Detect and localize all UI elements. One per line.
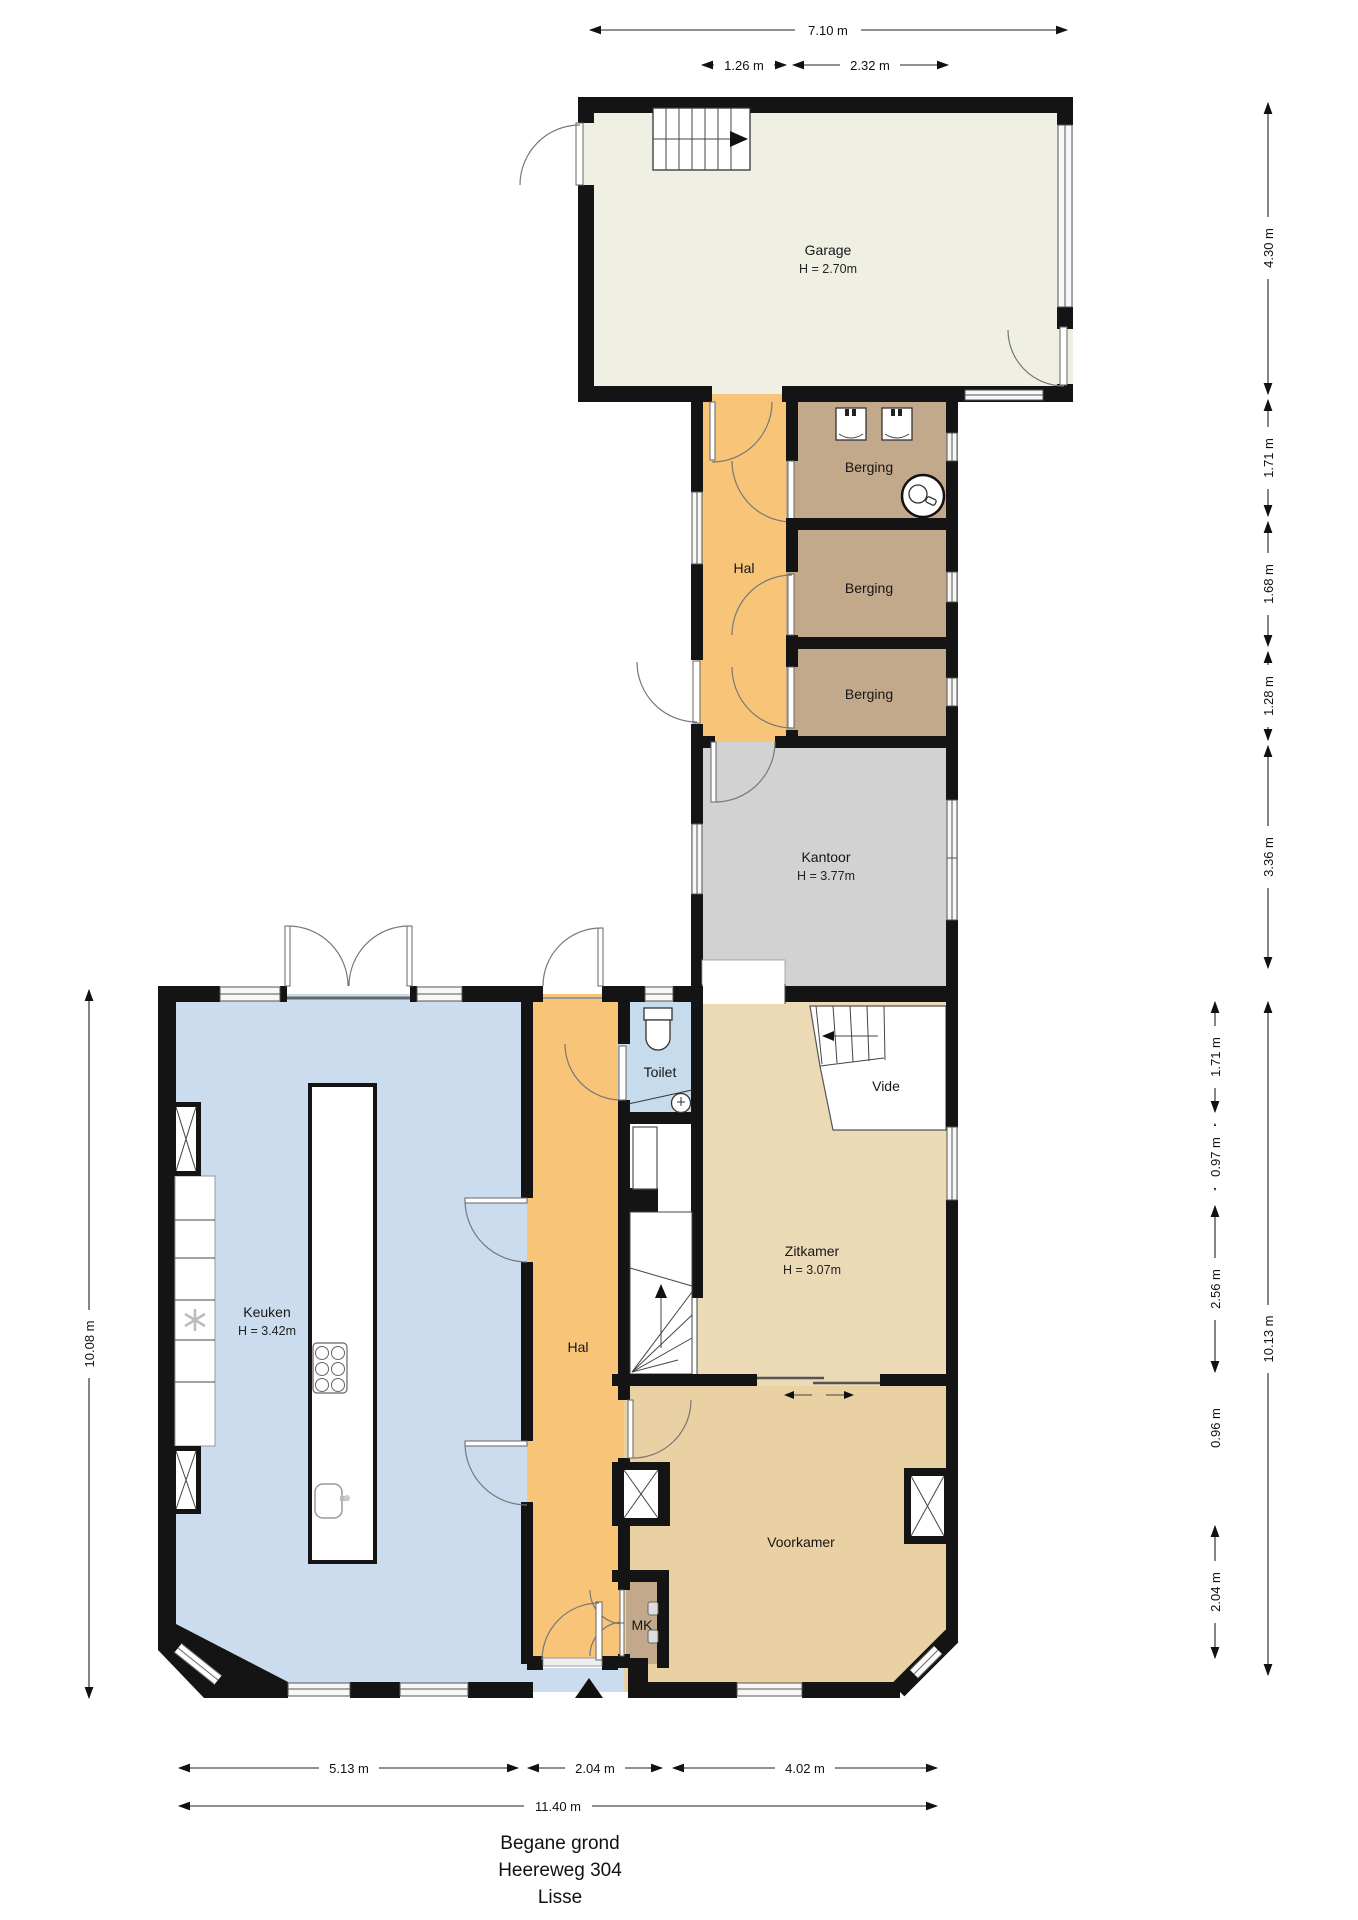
washing-machine-icon bbox=[836, 408, 866, 440]
toilet-icon bbox=[644, 1008, 672, 1050]
dim-bottom-voorkamer: 4.02 m bbox=[673, 1759, 937, 1777]
title-street: Heereweg 304 bbox=[498, 1860, 622, 1881]
stairs-icon bbox=[630, 1212, 697, 1374]
svg-text:11.40 m: 11.40 m bbox=[535, 1799, 581, 1814]
svg-text:2.32 m: 2.32 m bbox=[850, 58, 890, 73]
berging3-label: Berging bbox=[845, 686, 893, 702]
dim-top-total: 7.10 m bbox=[590, 21, 1067, 39]
svg-text:3.36 m: 3.36 m bbox=[1261, 837, 1276, 877]
garden-double-door bbox=[285, 926, 412, 998]
svg-text:7.10 m: 7.10 m bbox=[808, 23, 848, 38]
dim-right-seg3: 2.56 m bbox=[1206, 1206, 1224, 1372]
dim-right-berging3: 1.28 m bbox=[1259, 652, 1277, 740]
hal-mid-label: Hal bbox=[733, 560, 754, 576]
dim-right-kantoor: 3.36 m bbox=[1259, 746, 1277, 968]
garage-label: Garage bbox=[805, 242, 852, 258]
shaft-x-icon bbox=[904, 1468, 958, 1544]
svg-text:4.02 m: 4.02 m bbox=[785, 1761, 825, 1776]
keuken-height-label: H = 3.42m bbox=[238, 1324, 296, 1338]
dim-right-seg2: 0.97 m bbox=[1206, 1124, 1224, 1190]
dim-right-total: 10.13 m bbox=[1259, 1002, 1277, 1675]
svg-text:1.26 m: 1.26 m bbox=[724, 58, 764, 73]
shaft-x-icon bbox=[171, 1446, 201, 1514]
svg-text:5.13 m: 5.13 m bbox=[329, 1761, 369, 1776]
garage-side-door bbox=[520, 123, 583, 185]
svg-text:1.71 m: 1.71 m bbox=[1208, 1037, 1223, 1077]
keuken-bottom-window-right bbox=[400, 1683, 468, 1696]
title-floor: Begane grond bbox=[500, 1833, 619, 1854]
berging3-window bbox=[947, 678, 957, 706]
berging1-window bbox=[947, 433, 957, 461]
hal-left-window bbox=[692, 492, 702, 564]
dim-right-seg5: 2.04 m bbox=[1206, 1526, 1224, 1658]
keuken-top-window-left bbox=[220, 987, 280, 1001]
svg-text:4.30 m: 4.30 m bbox=[1261, 228, 1276, 268]
kitchen-counter bbox=[175, 1176, 215, 1446]
toilet-label: Toilet bbox=[644, 1064, 677, 1080]
svg-text:2.56 m: 2.56 m bbox=[1208, 1269, 1223, 1309]
keuken-top-window-right bbox=[417, 987, 462, 1001]
dim-top-berging: 2.32 m bbox=[793, 56, 948, 74]
zitkamer-window bbox=[947, 1127, 957, 1200]
side-entrance-door bbox=[637, 661, 700, 723]
kantoor-height-label: H = 3.77m bbox=[797, 869, 855, 883]
kantoor-passage-opening bbox=[702, 960, 785, 1004]
dim-right-seg4: 0.96 m bbox=[1206, 1397, 1224, 1459]
toilet-top-window bbox=[645, 987, 673, 1001]
zitkamer-label: Zitkamer bbox=[785, 1243, 840, 1259]
voorkamer-bottom-window bbox=[737, 1683, 802, 1696]
title-city: Lisse bbox=[538, 1887, 582, 1908]
dim-bottom-hal: 2.04 m bbox=[528, 1759, 662, 1777]
berging1-label: Berging bbox=[845, 459, 893, 475]
garage-right-window bbox=[1058, 125, 1072, 307]
toilet-sink-icon bbox=[672, 1094, 691, 1113]
dim-bottom-keuken: 5.13 m bbox=[179, 1759, 518, 1777]
svg-text:10.13 m: 10.13 m bbox=[1261, 1316, 1276, 1363]
shaft-x-icon bbox=[171, 1102, 201, 1176]
zitkamer-height-label: H = 3.07m bbox=[783, 1263, 841, 1277]
kantoor-left-window bbox=[692, 824, 702, 894]
floorplan-page: Garage H = 2.70m bbox=[0, 0, 1358, 1920]
garage-stairs-icon bbox=[653, 108, 750, 170]
svg-text:1.71 m: 1.71 m bbox=[1261, 438, 1276, 478]
boiler-icon bbox=[902, 475, 944, 517]
stove-icon bbox=[313, 1343, 347, 1393]
dim-right-garage: 4.30 m bbox=[1259, 103, 1277, 394]
svg-text:0.96 m: 0.96 m bbox=[1208, 1408, 1223, 1448]
washing-machine-icon bbox=[882, 408, 912, 440]
berging2-window bbox=[947, 572, 957, 602]
kantoor-label: Kantoor bbox=[801, 849, 850, 865]
dim-bottom-total: 11.40 m bbox=[179, 1797, 937, 1815]
dim-right-berging1: 1.71 m bbox=[1259, 400, 1277, 516]
keuken-bottom-window-left bbox=[288, 1683, 350, 1696]
back-entrance-door bbox=[543, 928, 603, 998]
keuken-label: Keuken bbox=[243, 1304, 290, 1320]
svg-text:2.04 m: 2.04 m bbox=[575, 1761, 615, 1776]
svg-text:2.04 m: 2.04 m bbox=[1208, 1572, 1223, 1612]
dim-right-seg1: 1.71 m bbox=[1206, 1002, 1224, 1112]
svg-text:1.28 m: 1.28 m bbox=[1261, 676, 1276, 716]
kitchen-island bbox=[310, 1085, 375, 1562]
title-block: Begane grond Heereweg 304 Lisse bbox=[498, 1833, 622, 1908]
berging2-label: Berging bbox=[845, 580, 893, 596]
dim-right-berging2: 1.68 m bbox=[1259, 522, 1277, 646]
vide-label: Vide bbox=[872, 1078, 900, 1094]
svg-text:0.97 m: 0.97 m bbox=[1208, 1137, 1223, 1177]
cupboard bbox=[633, 1127, 657, 1189]
voorkamer-label: Voorkamer bbox=[767, 1534, 835, 1550]
room-fills bbox=[166, 97, 1073, 1692]
kantoor-right-window bbox=[947, 800, 957, 920]
kantoor-floor bbox=[691, 742, 958, 994]
svg-text:1.68 m: 1.68 m bbox=[1261, 564, 1276, 604]
dim-left-total: 10.08 m bbox=[80, 990, 98, 1698]
svg-text:10.08 m: 10.08 m bbox=[82, 1321, 97, 1368]
garage-bottom-window bbox=[965, 390, 1043, 400]
garage-height-label: H = 2.70m bbox=[799, 262, 857, 276]
dim-top-hal: 1.26 m bbox=[702, 56, 786, 74]
vide-area: Vide bbox=[810, 1006, 946, 1130]
hal-lower-label: Hal bbox=[567, 1339, 588, 1355]
shaft-x-icon bbox=[612, 1462, 670, 1526]
floorplan-canvas: Garage H = 2.70m bbox=[0, 0, 1358, 1920]
hal-lower-floor bbox=[527, 994, 630, 1666]
